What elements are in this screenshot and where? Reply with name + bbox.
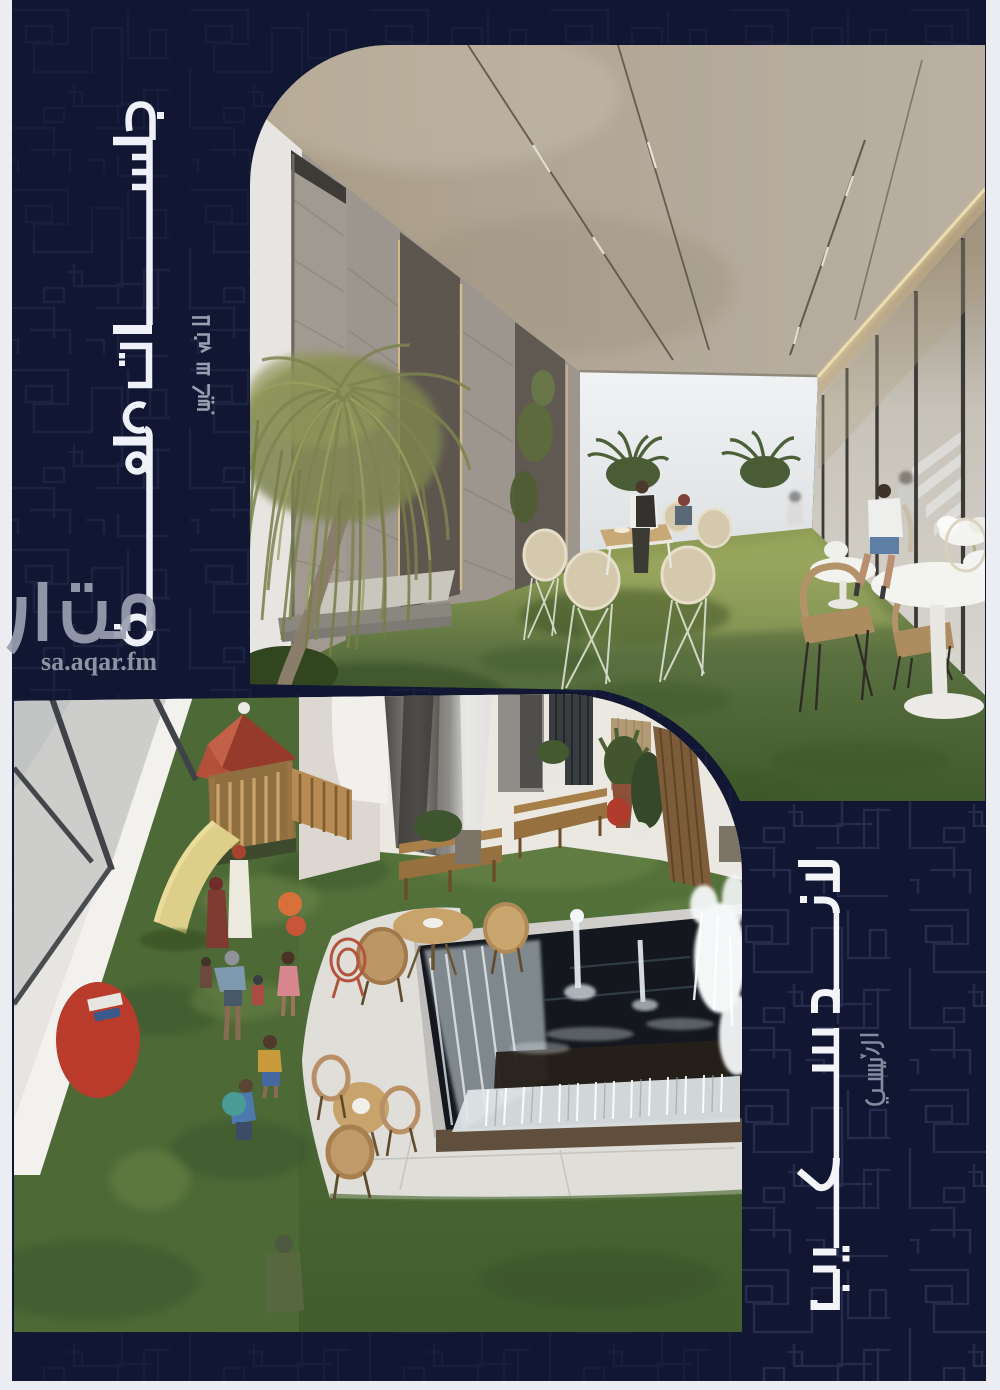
svg-text:sa.aqar.fm: sa.aqar.fm bbox=[41, 647, 157, 676]
